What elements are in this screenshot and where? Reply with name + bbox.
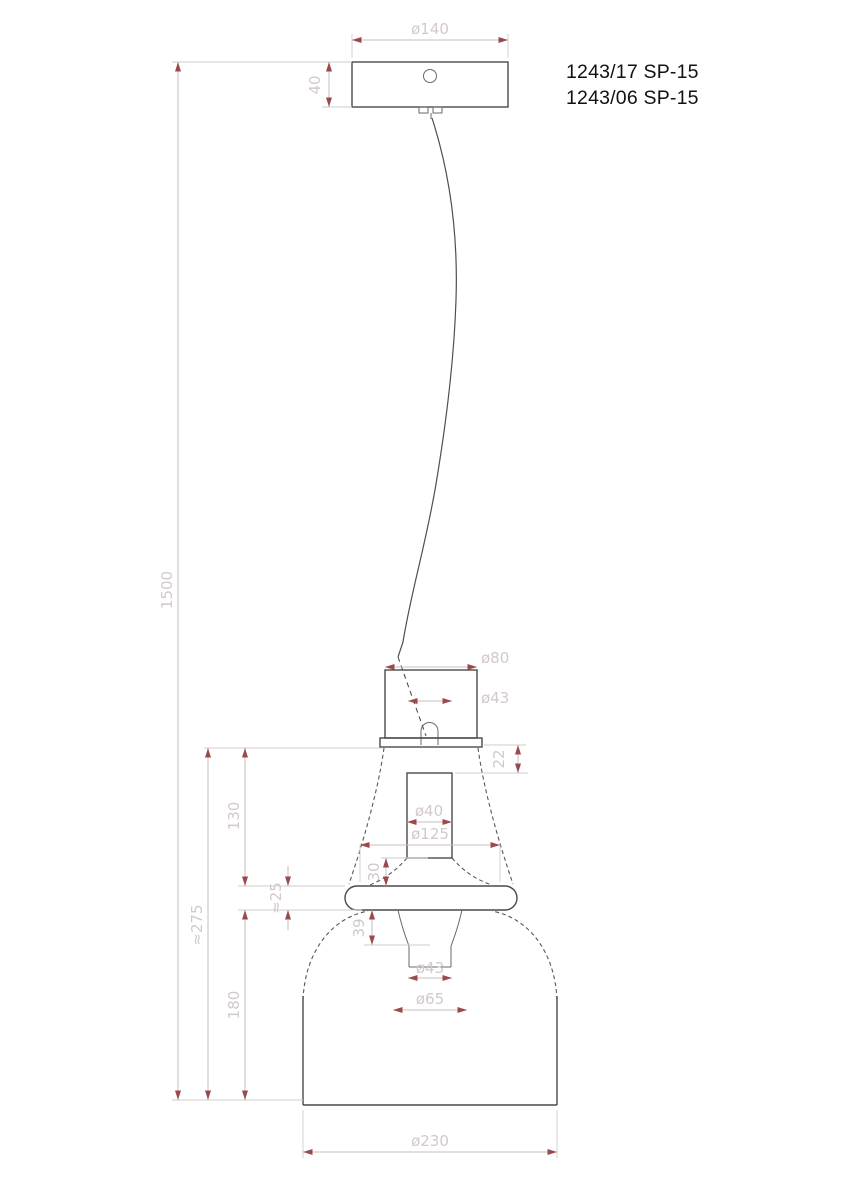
dim-canopy-height: 40 — [306, 75, 324, 94]
dim-upper-glass-height: 130 — [225, 802, 243, 831]
dim-socket-tube-diameter: ø40 — [415, 802, 443, 820]
neck-outline — [380, 670, 482, 747]
dim-nipple-depth: 39 — [350, 918, 368, 937]
dim-nipple-inner-diameter: ø43 — [416, 959, 444, 977]
technical-drawing-page: 1243/17 SP-15 1243/06 SP-15 — [0, 0, 849, 1200]
dim-shoulder-diameter: ø125 — [411, 825, 449, 843]
dimension-labels: ø140 40 1500 ≈275 130 ≈25 180 ø80 ø43 22… — [158, 20, 509, 1150]
dim-neck-inner-diameter: ø43 — [481, 689, 509, 707]
dim-bell-diameter: ø230 — [411, 1132, 449, 1150]
extension-lines — [172, 34, 557, 1158]
cable-hook — [421, 723, 438, 746]
collar-ring — [345, 886, 517, 910]
nipple-left-edge — [398, 910, 409, 967]
dim-glass-assembly-height: ≈275 — [188, 904, 206, 945]
mounting-hole — [424, 70, 437, 83]
dim-nipple-outer-diameter: ø65 — [416, 990, 444, 1008]
dim-canopy-diameter: ø140 — [411, 20, 449, 38]
dim-bell-height: 180 — [225, 991, 243, 1020]
dim-ring-height: ≈25 — [267, 882, 285, 914]
dim-overall-height: 1500 — [158, 571, 176, 609]
pendant-lamp-drawing: ø140 40 1500 ≈275 130 ≈25 180 ø80 ø43 22… — [0, 0, 849, 1200]
cable-gland-right — [433, 107, 442, 113]
cable-gland-left — [419, 107, 428, 113]
dim-socket-inset-depth: 30 — [365, 862, 383, 881]
suspension-cable — [398, 118, 456, 745]
dim-neck-diameter: ø80 — [481, 649, 509, 667]
dim-flange-to-socket-gap: 22 — [490, 749, 508, 768]
cable-hidden-section — [398, 657, 426, 736]
canopy-outline — [352, 62, 508, 119]
dimension-lines — [178, 40, 557, 1152]
nipple-right-edge — [451, 910, 462, 967]
